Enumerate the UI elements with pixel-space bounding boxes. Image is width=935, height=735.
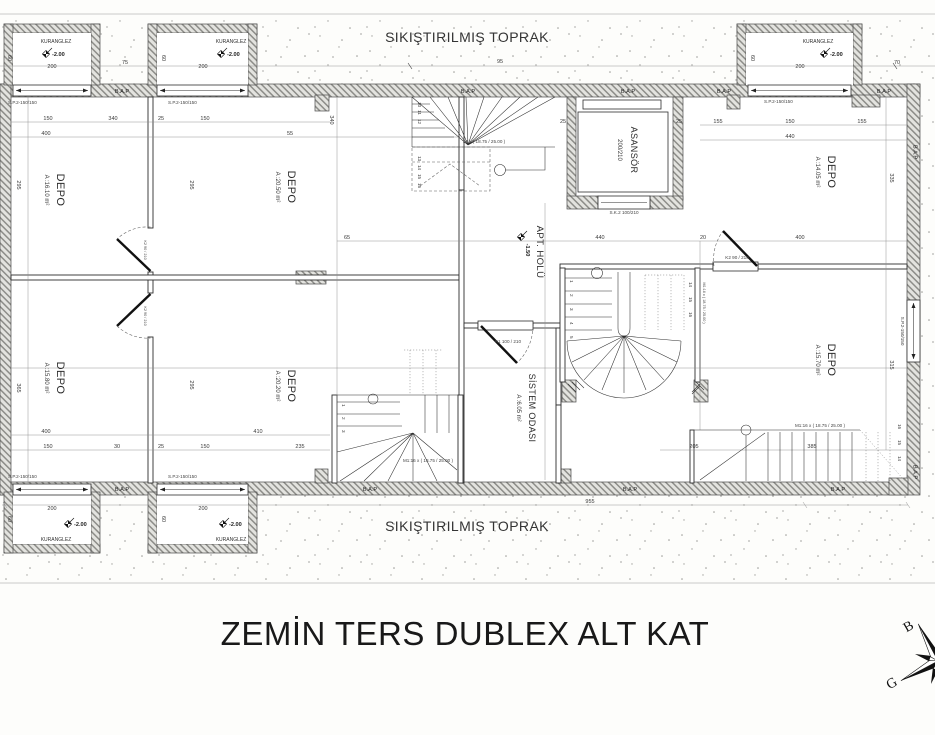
elevator-size: 200/210	[616, 139, 622, 161]
tread-number: 11	[417, 110, 422, 115]
dim: 400	[795, 235, 804, 241]
dim: 150	[43, 444, 52, 450]
tread-number: 1	[341, 404, 346, 407]
tread-number: 3	[569, 308, 574, 311]
room-name: DEPO	[54, 362, 66, 395]
tread-number: 13	[417, 156, 422, 162]
dim: 70	[894, 60, 900, 66]
tread-number: 14	[688, 282, 693, 288]
stair-label: M1:16 x ( 18.75 / 25.00 )	[702, 282, 706, 324]
dim: 60	[160, 55, 166, 61]
lightwell-bottom-1: -2.00 KURANGLEZ	[4, 492, 100, 553]
bap-label: B.A.P	[461, 89, 476, 95]
level-value: -2.00	[52, 52, 65, 58]
dim: 75	[122, 60, 128, 66]
stair-label: M1:16 x ( 18.75 / 25.00 )	[403, 458, 454, 463]
tread-number: 1	[569, 280, 574, 283]
floor-plan-drawing: SIKIŞTIRILMIŞ TOPRAK KURANGLEZ -2.00 KUR…	[0, 0, 935, 735]
level-value: -2.00	[227, 52, 240, 58]
door-label: K2 90 / 210	[143, 306, 147, 325]
tread-number: 16	[417, 183, 422, 189]
dim: 200	[198, 64, 207, 70]
tread-number: 15	[417, 174, 422, 180]
dim: 25	[560, 119, 566, 125]
bap-label: B.A.P	[912, 145, 918, 160]
bap-label: B.A.P	[621, 89, 636, 95]
window-label: S.P.2-150/150	[8, 474, 37, 479]
level-value: -2.00	[229, 522, 242, 528]
dim: 235	[295, 444, 304, 450]
compass-rose: B G	[881, 604, 935, 718]
dim: 60	[749, 55, 755, 61]
room-area: A :6.05 m²	[515, 394, 521, 421]
lightwell-label: KURANGLEZ	[216, 39, 247, 45]
dim: 440	[785, 134, 794, 140]
dim: 150	[785, 119, 794, 125]
tread-number: 14	[897, 456, 902, 462]
dim: 95	[497, 59, 503, 65]
dim: 200	[198, 506, 207, 512]
room-name: APT. HOLÜ	[534, 226, 545, 279]
window-label: S.P.2-150/150	[168, 474, 197, 479]
room-name: DEPO	[285, 171, 297, 204]
dim: 25	[158, 116, 164, 122]
room-name: DEPO	[285, 370, 297, 403]
dim: 295	[15, 180, 21, 189]
dim: 295	[188, 180, 194, 189]
lightwell-label: KURANGLEZ	[41, 537, 72, 543]
dim: 60	[6, 516, 12, 522]
tread-number: 12	[417, 119, 422, 125]
bap-label: B.A.P	[912, 465, 918, 480]
stair-label: M1:16 x ( 18.75 / 25.00 )	[795, 423, 846, 428]
soil-label-top: SIKIŞTIRILMIŞ TOPRAK	[385, 29, 549, 45]
dim: 25	[158, 444, 164, 450]
dim: 340	[328, 115, 334, 124]
bap-label: B.A.P	[717, 89, 732, 95]
door-label: K2 90 / 210	[725, 255, 749, 260]
dim: 20	[700, 235, 706, 241]
tread-number: 15	[688, 297, 693, 303]
soil-right-margin	[920, 90, 935, 482]
tread-number: 5	[569, 336, 574, 339]
dim: 335	[888, 173, 894, 182]
dim: 385	[807, 444, 816, 450]
wall-bottom	[0, 482, 908, 495]
room-name: DEPO	[54, 174, 66, 207]
lightwell-bottom-2: -2.00 KURANGLEZ	[148, 492, 257, 553]
room-name: DEPO	[825, 156, 837, 189]
bap-label: B.A.P	[623, 487, 638, 493]
floor-plan-page: SIKIŞTIRILMIŞ TOPRAK KURANGLEZ -2.00 KUR…	[0, 0, 935, 735]
window-label: S.P.2-150/150	[168, 100, 197, 105]
door-label: K1 100 / 210	[495, 339, 521, 344]
tread-number: 2	[569, 294, 574, 297]
dim: 400	[41, 429, 50, 435]
dim: 150	[200, 116, 209, 122]
bap-label: B.A.P	[831, 487, 846, 493]
room-area: A :16.10 m²	[43, 175, 49, 206]
dim: 55	[287, 131, 293, 137]
lightwell-label: KURANGLEZ	[216, 537, 247, 543]
window-label: S.P.2-150/150	[764, 99, 793, 104]
elevator-name: ASANSÖR	[629, 127, 639, 174]
tread-number: 10	[417, 102, 422, 108]
dim: 440	[595, 235, 604, 241]
window-label: S.P.2-150/150	[900, 317, 905, 346]
bap-label: B.A.P	[877, 89, 892, 95]
dim: 30	[114, 444, 120, 450]
stair-label: 16 x ( 18.75 / 25.00 )	[463, 139, 506, 144]
bap-label: B.A.P	[115, 89, 130, 95]
dim: 60	[160, 516, 166, 522]
window-label: S.P.2-150/150	[8, 100, 37, 105]
compass-south-label: G	[884, 675, 900, 693]
room-area: A :20.20 m²	[274, 371, 280, 402]
tread-number: 4	[569, 322, 574, 325]
room-area: A :20.50 m²	[274, 172, 280, 203]
level-value: -1.50	[524, 244, 530, 257]
dim: 955	[585, 499, 594, 505]
bap-label: B.A.P	[115, 487, 130, 493]
lightwell-label: KURANGLEZ	[41, 39, 72, 45]
dim: 65	[344, 235, 350, 241]
room-name: SİSTEM ODASI	[527, 374, 537, 443]
level-value: -2.00	[74, 522, 87, 528]
dim: 205	[689, 444, 698, 450]
dim: 200	[47, 506, 56, 512]
soil-band-bottom	[0, 495, 935, 583]
wall-left	[0, 84, 11, 495]
dim: 155	[713, 119, 722, 125]
room-area: A :15.80 m²	[43, 363, 49, 394]
dim: 410	[253, 429, 262, 435]
dim: 400	[41, 131, 50, 137]
dim: 155	[857, 119, 866, 125]
tread-number: 3	[341, 430, 346, 433]
tread-number: 16	[688, 312, 693, 318]
dim: 200	[47, 64, 56, 70]
bap-label: B.A.P	[363, 487, 378, 493]
dim: 365	[15, 383, 21, 392]
room-name: DEPO	[825, 344, 837, 377]
room-area: A :15.70 m²	[814, 345, 820, 376]
tread-number: 16	[897, 424, 902, 430]
dim: 315	[888, 360, 894, 369]
level-value: -2.00	[830, 52, 843, 58]
dim: 295	[188, 380, 194, 389]
tread-number: 14	[417, 165, 422, 171]
dim: 150	[43, 116, 52, 122]
lightwell-label: KURANGLEZ	[803, 39, 834, 45]
dim: 200	[795, 64, 804, 70]
room-area: A :14.05 m²	[814, 157, 820, 188]
door-label: K2 90 / 210	[143, 240, 147, 259]
dim: 340	[108, 116, 117, 122]
tread-number: 2	[341, 417, 346, 420]
dim: 60	[6, 55, 12, 61]
lightwell-top-1: KURANGLEZ -2.00	[4, 24, 100, 85]
compass-west-label: B	[901, 618, 917, 636]
drawing-title: ZEMİN TERS DUBLEX ALT KAT	[221, 615, 710, 652]
soil-label-bottom: SIKIŞTIRILMIŞ TOPRAK	[385, 518, 549, 534]
tread-number: 15	[897, 440, 902, 446]
dim: 25	[676, 119, 682, 125]
elevator-door-label: S.K.2 100/210	[609, 210, 639, 215]
dim: 150	[200, 444, 209, 450]
